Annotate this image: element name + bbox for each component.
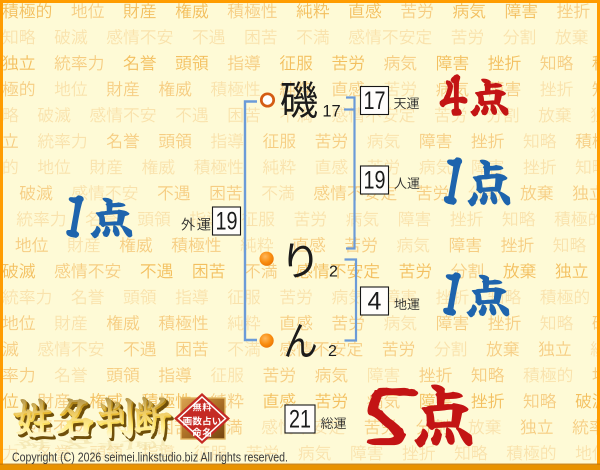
svg-text:17: 17 bbox=[322, 103, 340, 121]
svg-text:2: 2 bbox=[329, 264, 338, 281]
svg-text:Copyright (C) 2026 seimei.link: Copyright (C) 2026 seimei.linkstudio.biz… bbox=[12, 450, 288, 465]
svg-text:21: 21 bbox=[289, 405, 311, 433]
svg-text:4: 4 bbox=[368, 287, 382, 315]
svg-text:2: 2 bbox=[328, 343, 337, 360]
svg-text:17: 17 bbox=[364, 87, 386, 115]
svg-text:19: 19 bbox=[216, 207, 238, 235]
svg-text:19: 19 bbox=[364, 166, 386, 194]
